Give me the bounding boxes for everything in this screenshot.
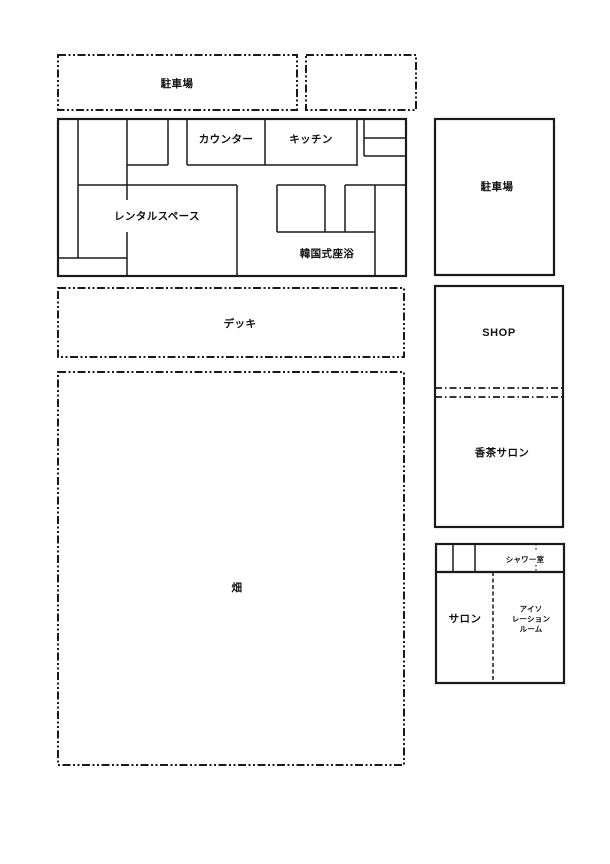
annex-column: 駐車場 SHOP 香茶サロン シャワー室 サロン アイソ レーション ルーム	[435, 119, 564, 683]
salon-top-strip-partitions	[453, 544, 475, 572]
parking-top-small-area-outline	[306, 55, 416, 110]
tea-salon-label: 香茶サロン	[474, 446, 530, 459]
deck-label: デッキ	[224, 317, 257, 330]
outdoor-areas: 駐車場 デッキ 畑	[58, 55, 416, 765]
site-floor-plan: 駐車場 デッキ 畑 カウンター キッチン レンタルスペース 韓国式座浴 駐車場 …	[0, 0, 610, 864]
annex-parking-outline	[435, 119, 554, 275]
shower-room-label: シャワー室	[506, 554, 545, 564]
field-area-outline	[58, 372, 404, 765]
floor-plan-canvas: 駐車場 デッキ 畑 カウンター キッチン レンタルスペース 韓国式座浴 駐車場 …	[0, 0, 610, 864]
counter-room-label: カウンター	[199, 134, 254, 146]
korean-sitz-bath-room-label: 韓国式座浴	[300, 247, 355, 260]
annex-parking-label: 駐車場	[481, 180, 514, 193]
isolation-room-label-line3: ルーム	[520, 625, 543, 634]
isolation-room-label-line2: レーション	[512, 615, 551, 624]
main-building: カウンター キッチン レンタルスペース 韓国式座浴	[58, 119, 406, 276]
isolation-room-label-line1: アイソ	[520, 605, 543, 614]
shop-label: SHOP	[482, 327, 516, 339]
rental-space-room-label: レンタルスペース	[114, 211, 200, 223]
field-label: 畑	[232, 581, 243, 594]
parking-top-label: 駐車場	[161, 77, 194, 90]
salon-label: サロン	[449, 613, 482, 625]
isolation-room-label: アイソ レーション ルーム	[512, 605, 551, 634]
kitchen-room-label: キッチン	[289, 134, 333, 146]
shop-salon-outline	[435, 286, 563, 527]
